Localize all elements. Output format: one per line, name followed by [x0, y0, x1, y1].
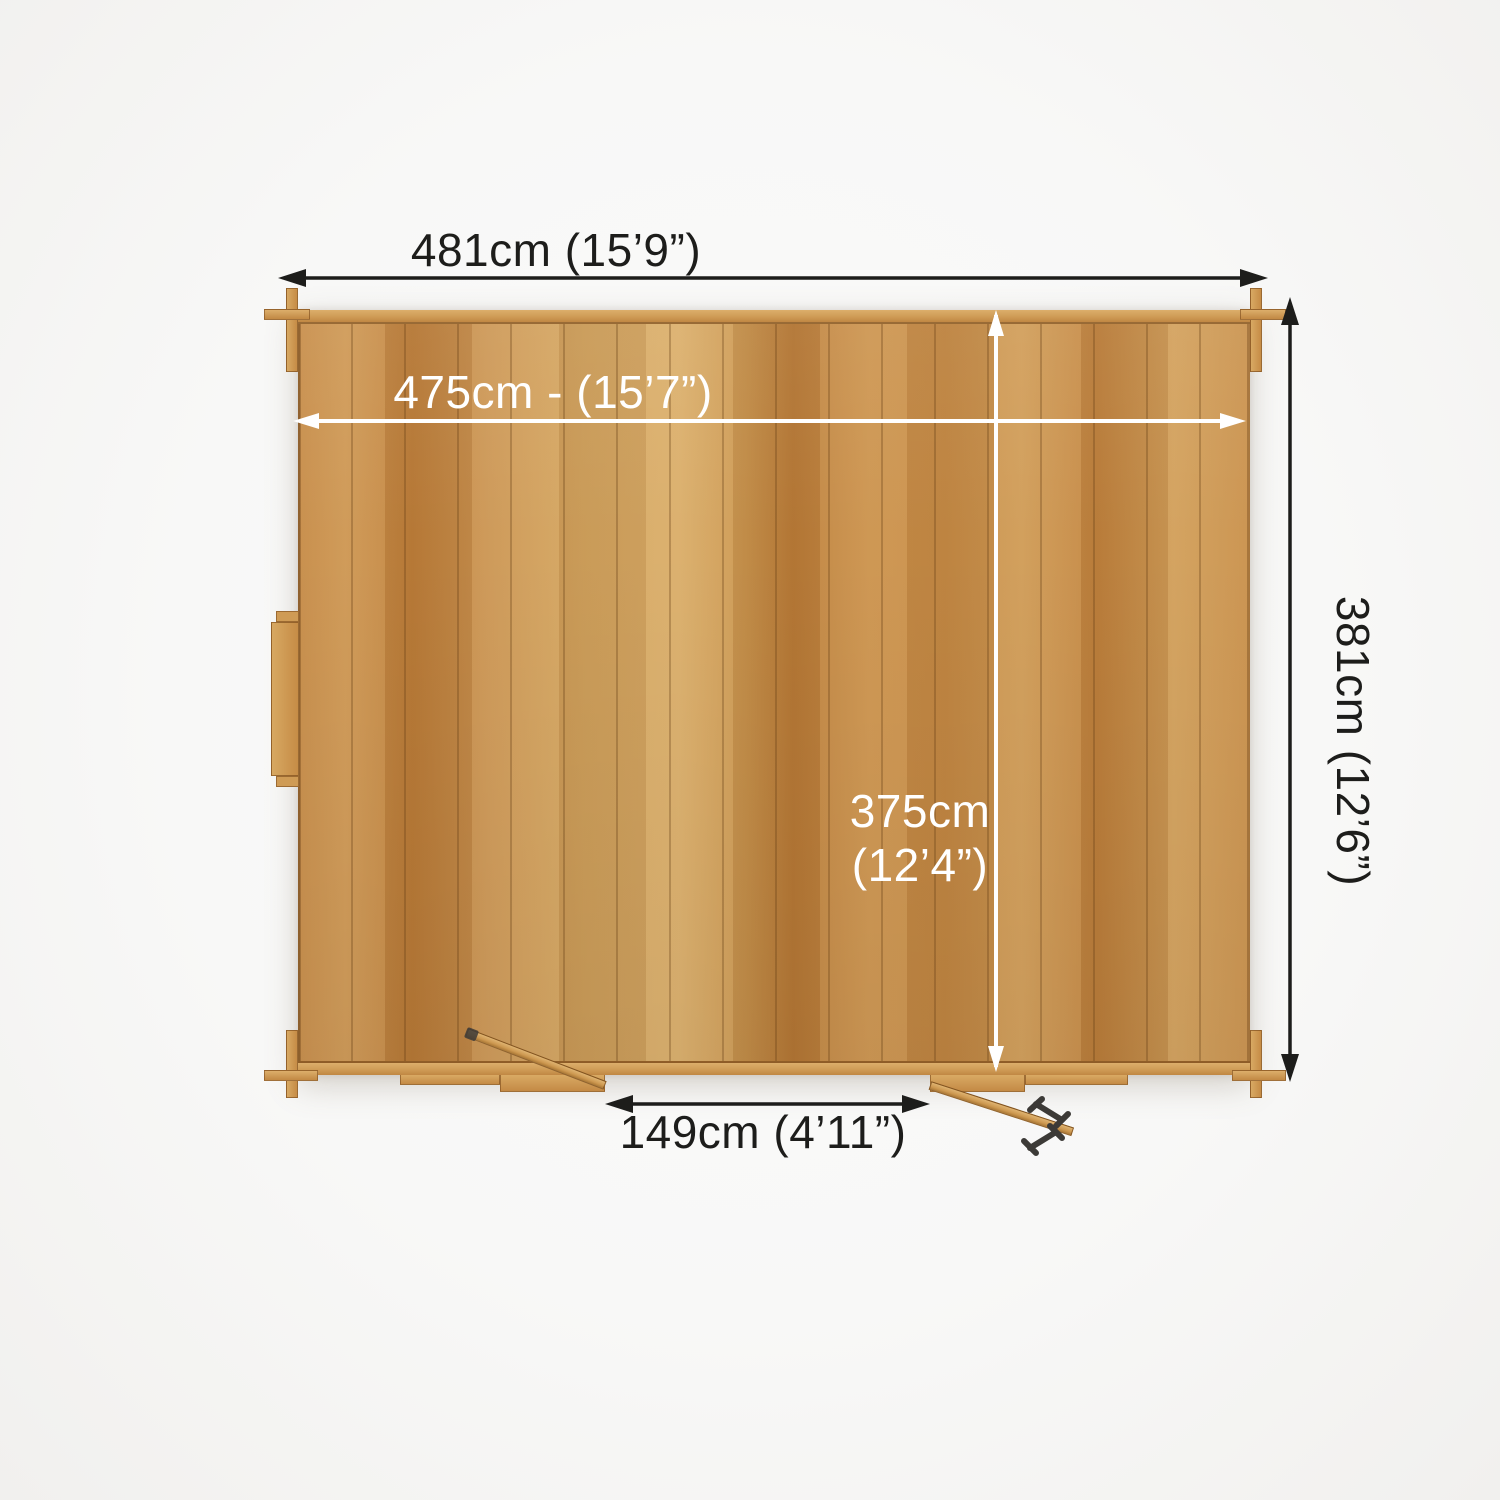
- corner-post-bottom-left: [286, 1030, 298, 1098]
- side-window-left: [271, 622, 299, 776]
- inner-width-label: 475cm - (15’7”): [303, 366, 803, 418]
- inner-depth-label-imperial: (12’4”): [790, 838, 1050, 892]
- front-wall-strip: [298, 310, 1250, 324]
- door-frame-step-right-outer: [1025, 1075, 1128, 1085]
- corner-log-bottom-left: [264, 1070, 318, 1081]
- corner-post-bottom-right: [1250, 1030, 1262, 1098]
- corner-post-top-right: [1250, 288, 1262, 372]
- outer-depth-dimension-line: [1281, 297, 1299, 1082]
- corner-post-top-left: [286, 288, 298, 372]
- corner-log-top-right: [1240, 309, 1286, 320]
- back-wall-strip: [298, 1061, 1250, 1075]
- cabin-floor-plan: [298, 310, 1250, 1075]
- product-dimension-diagram: 481cm (15’9”) 475cm - (15’7”) 381cm (12’…: [0, 0, 1500, 1500]
- corner-log-bottom-right: [1232, 1070, 1286, 1081]
- side-window-left-frame-bottom: [276, 776, 299, 787]
- inner-depth-label-value: 375cm: [790, 784, 1050, 838]
- outer-depth-label: 381cm (12’6”): [1323, 581, 1379, 901]
- door-width-label: 149cm (4’11”): [513, 1106, 1013, 1158]
- inner-depth-label: 375cm (12’4”): [790, 784, 1050, 892]
- door-frame-step-left-outer: [400, 1075, 500, 1085]
- corner-log-top-left: [264, 309, 310, 320]
- outer-width-label: 481cm (15’9”): [300, 224, 812, 276]
- side-window-left-frame-top: [276, 611, 299, 622]
